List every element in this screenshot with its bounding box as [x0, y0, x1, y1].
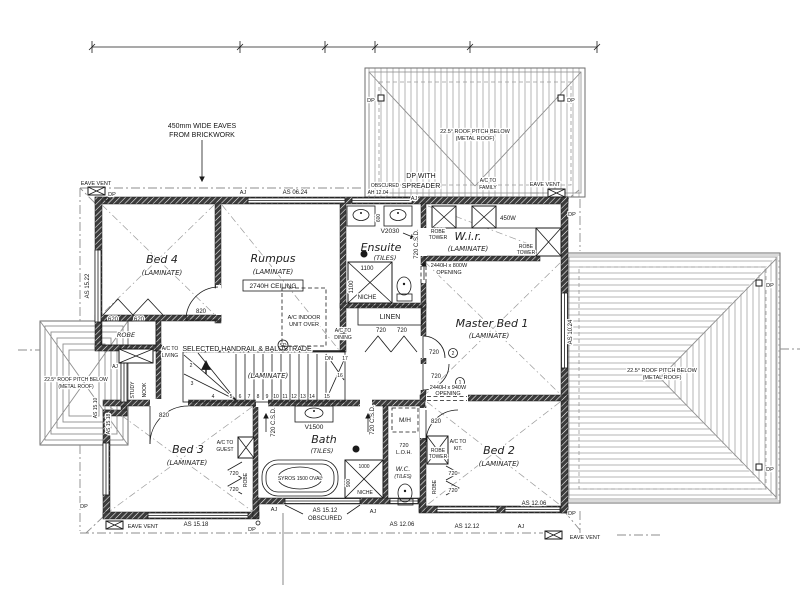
window-label: AS 15.18 [184, 522, 209, 528]
roof-pitch-label: 22.5° ROOF PITCH BELOW [440, 129, 511, 135]
eave-vent-icon [106, 521, 123, 529]
robe-tower-icon [472, 206, 496, 228]
ac-indoor-label: A/C INDOOR [288, 315, 321, 321]
dp-spreader-note: DP WITH [406, 173, 435, 180]
window-bed3-bottom [148, 513, 248, 518]
door-label: 620 [108, 317, 119, 323]
door-label: 720 [448, 488, 457, 494]
wc-bed2-area: M/H 720 L.O.H. 820 A/C TO KIT. ROBE TOWE… [392, 408, 466, 505]
basin-icon [384, 206, 412, 226]
stair-number: 17 [342, 356, 348, 362]
eave-vent-label: EAVE VENT [530, 182, 561, 188]
door-label: 720 [229, 487, 238, 493]
master-doors: 720 2 720 1 2440H x 940W OPENING [423, 336, 467, 401]
stair-number: 2 [190, 363, 193, 369]
exhaust-fan-icon [361, 251, 368, 258]
door-tag-number: 2 [452, 351, 455, 357]
roof-right: 22.5° ROOF PITCH BELOW (METAL ROOF) DP D… [565, 253, 800, 503]
dp-label: DP [80, 504, 88, 510]
ac-indoor-unit: A/C INDOOR UNIT OVER [282, 288, 326, 346]
roof-material-label: (METAL ROOF) [643, 375, 682, 381]
roof-material-label: (METAL ROOF) [58, 384, 94, 390]
eave-vent-icon [545, 531, 562, 539]
mh-label: M/H [399, 417, 411, 424]
shower-dim: 1100 [349, 280, 355, 294]
eave-vent-label: EAVE VENT [128, 524, 159, 530]
window-note: OBSCURED [371, 183, 400, 189]
stair-number: 14 [309, 394, 315, 400]
robe-label: ROBE [432, 479, 438, 494]
door-label: 720 [429, 350, 440, 356]
window-label: AS 15.12 [313, 508, 338, 514]
window-label: AS 12.06 [390, 522, 415, 528]
vanity-label: V2030 [381, 228, 400, 235]
robe-tower-icon [432, 206, 456, 228]
window-label: AS 15.18 [106, 413, 112, 434]
window-study [121, 362, 127, 402]
window-label: OBSCURED [308, 516, 343, 522]
staircase: SELECTED HANDRAIL & BALUSTRADE (LAMINATE… [182, 346, 348, 402]
robe-tower-label: TOWER [429, 454, 448, 460]
window-rumpus [248, 198, 345, 203]
stair-number: 16 [337, 373, 343, 379]
door-note: L.O.H. [396, 450, 412, 456]
dp-label: DP [568, 212, 576, 218]
door-label: 720 [229, 471, 238, 477]
ac-note: GUEST [216, 447, 233, 453]
roof-top: 22.5° ROOF PITCH BELOW (METAL ROOF) DP D… [365, 68, 585, 197]
stair-number: 5 [230, 394, 233, 400]
room-name-bed3: Bed 3 [172, 443, 204, 456]
window-label: AS 06.24 [283, 190, 308, 196]
door-label: 720 [376, 328, 387, 334]
ac-note: A/C TO [480, 178, 497, 184]
window-bed2-bottom [437, 507, 497, 512]
room-finish-bed3: (LAMINATE) [167, 459, 208, 467]
room-name-wc: W.C. [396, 465, 411, 473]
dimension-line [89, 41, 600, 53]
ac-note: A/C TO [162, 346, 179, 352]
dp-label: DP [367, 98, 375, 104]
stair-number: 13 [300, 394, 306, 400]
exhaust-fan-icon [353, 446, 360, 453]
shower-dim: 1000 [358, 464, 369, 470]
floor-plan-drawing: 22.5° ROOF PITCH BELOW (METAL ROOF) DP D… [0, 0, 800, 600]
door-label: 820 [159, 413, 170, 419]
basin-icon [347, 206, 375, 226]
dp-label: DP [766, 283, 774, 289]
vanity-icon [295, 406, 333, 422]
opening-note: OPENING [436, 270, 461, 276]
window-bed4 [95, 250, 101, 322]
aj-marker: AJ [411, 196, 418, 202]
window-master [562, 293, 568, 368]
door-label: 820 [431, 419, 442, 425]
roof-pitch-label: 22.5° ROOF PITCH BELOW [44, 377, 108, 383]
dp-label: DP [108, 192, 116, 198]
robe-tower-label: TOWER [429, 235, 448, 241]
bathtub-label: SYROS 1500 OVAL [278, 476, 323, 482]
vanity-label: V1500 [305, 424, 324, 431]
ac-note: A/C TO [450, 439, 467, 445]
eave-vent-icon [548, 189, 565, 197]
shelf-label: 450W [500, 216, 516, 222]
door-label: 720 [397, 328, 408, 334]
door-label: 820 [196, 309, 207, 315]
floor-plan-sheet: 22.5° ROOF PITCH BELOW (METAL ROOF) DP D… [0, 0, 800, 600]
study-nook-label: NOOK [142, 382, 148, 397]
window-label: AS 12.06 [522, 501, 547, 507]
ac-indoor-label: UNIT OVER [289, 322, 319, 328]
sd-label: SD [280, 343, 287, 349]
handrail-note: SELECTED HANDRAIL & BALUSTRADE [182, 346, 312, 353]
eave-vent-icon [88, 187, 105, 195]
eave-vent-label: EAVE VENT [81, 181, 112, 187]
linen-label: LINEN [380, 314, 401, 321]
room-name-master: Master Bed 1 [456, 317, 529, 330]
robe-tower-icon [119, 349, 153, 363]
stair-finish-label: (LAMINATE) [248, 372, 289, 380]
door-label: 720 [448, 471, 457, 477]
robe-tower-label: TOWER [517, 250, 536, 256]
room-finish-bed4: (LAMINATE) [142, 269, 183, 277]
wir-fixtures: 450W ROBE TOWER ROBE TOWER 2440H x 800W … [421, 206, 561, 283]
dp-spreader-note: SPREADER [402, 183, 441, 190]
room-finish-ensuite: (TILES) [374, 254, 397, 262]
toilet-icon [397, 277, 412, 301]
door-label: 720 [431, 374, 442, 380]
door-label-csd: 720 C.S.D. [271, 407, 277, 437]
stair-number: 4 [212, 394, 215, 400]
dp-label: DP [567, 98, 575, 104]
eave-vent-label: EAVE VENT [570, 535, 601, 541]
ac-note: FAMILY [479, 185, 497, 191]
down-label: DN [325, 356, 333, 362]
door-label-csd: 720 C.S.D. [414, 229, 420, 259]
stair-number: 8 [257, 394, 260, 400]
room-name-bath: Bath [311, 433, 337, 446]
window-bath [285, 499, 360, 504]
window-bed2-corner [505, 507, 560, 512]
robe-tower-icon [238, 437, 254, 458]
eaves-note: FROM BRICKWORK [169, 132, 235, 139]
stair-number: 10 [273, 394, 279, 400]
ac-note: LIVING [162, 353, 179, 359]
shower-dim: 900 [346, 479, 352, 488]
ac-note: KIT. [454, 446, 463, 452]
door-label-csd: 720 C.S.D. [370, 405, 376, 435]
stair-number: 3 [191, 381, 194, 387]
robe-label: ROBE [117, 331, 136, 339]
stair-number: 12 [291, 394, 297, 400]
aj-marker: AJ [112, 364, 118, 370]
dp-label: DP [766, 467, 774, 473]
window-note: AH 12.04 [368, 190, 389, 196]
roof-pitch-label: 22.5° ROOF PITCH BELOW [627, 368, 698, 374]
aj-marker: AJ [240, 190, 247, 196]
robe-tower-icon [536, 228, 561, 256]
ac-note: A/C TO [335, 328, 352, 334]
room-name-bed2: Bed 2 [483, 444, 515, 457]
room-name-bed4: Bed 4 [146, 253, 178, 266]
manhole-marker: M/H [392, 408, 418, 432]
roof-material-label: (METAL ROOF) [456, 136, 495, 142]
window-bed3-left [103, 443, 109, 495]
niche-label: NICHE [358, 295, 377, 301]
door-label: 620 [134, 317, 145, 323]
room-name-wir: W.i.r. [454, 230, 481, 243]
rumpus-ceiling-note: 2740H CEILING [250, 283, 297, 290]
stair-number: 6 [239, 394, 242, 400]
fixture-dim: 600 [376, 214, 382, 223]
eaves-note: 450mm WIDE EAVES [168, 123, 237, 130]
ac-note: DINING [334, 335, 352, 341]
window-ensuite [352, 198, 412, 203]
shower-dim: 1100 [361, 266, 375, 272]
stair-number: 15 [324, 394, 330, 400]
door-tag: 2 [449, 349, 458, 358]
study-nook-label: STUDY [130, 381, 136, 399]
window-label: AS 10.24 [568, 319, 574, 344]
stair-number: 9 [266, 394, 269, 400]
room-finish-wc: (TILES) [394, 474, 412, 480]
room-finish-bath: (TILES) [311, 447, 334, 455]
room-finish-master: (LAMINATE) [469, 332, 510, 340]
stair-number: 11 [282, 394, 287, 400]
room-name-rumpus: Rumpus [250, 252, 295, 265]
aj-marker: AJ [370, 509, 377, 515]
opening-note: 2440H x 800W [431, 263, 468, 269]
smoke-detector-icon: SD [278, 340, 288, 350]
niche-label: NICHE [357, 490, 373, 496]
aj-marker: AJ [271, 507, 278, 513]
ac-note: A/C TO [217, 440, 234, 446]
robe-label: ROBE [243, 472, 249, 487]
window-label: AS 12.12 [455, 524, 480, 530]
stair-number: 7 [248, 394, 251, 400]
window-label: AS 15.22 [85, 273, 91, 298]
aj-marker: AJ [518, 524, 525, 530]
dp-label: DP [248, 527, 256, 533]
room-finish-bed2: (LAMINATE) [479, 460, 520, 468]
window-label: AS 15.10 [93, 397, 99, 418]
door-note: 720 [399, 443, 408, 449]
room-finish-rumpus: (LAMINATE) [253, 268, 294, 276]
room-finish-wir: (LAMINATE) [448, 245, 489, 253]
dp-label: DP [568, 511, 576, 517]
